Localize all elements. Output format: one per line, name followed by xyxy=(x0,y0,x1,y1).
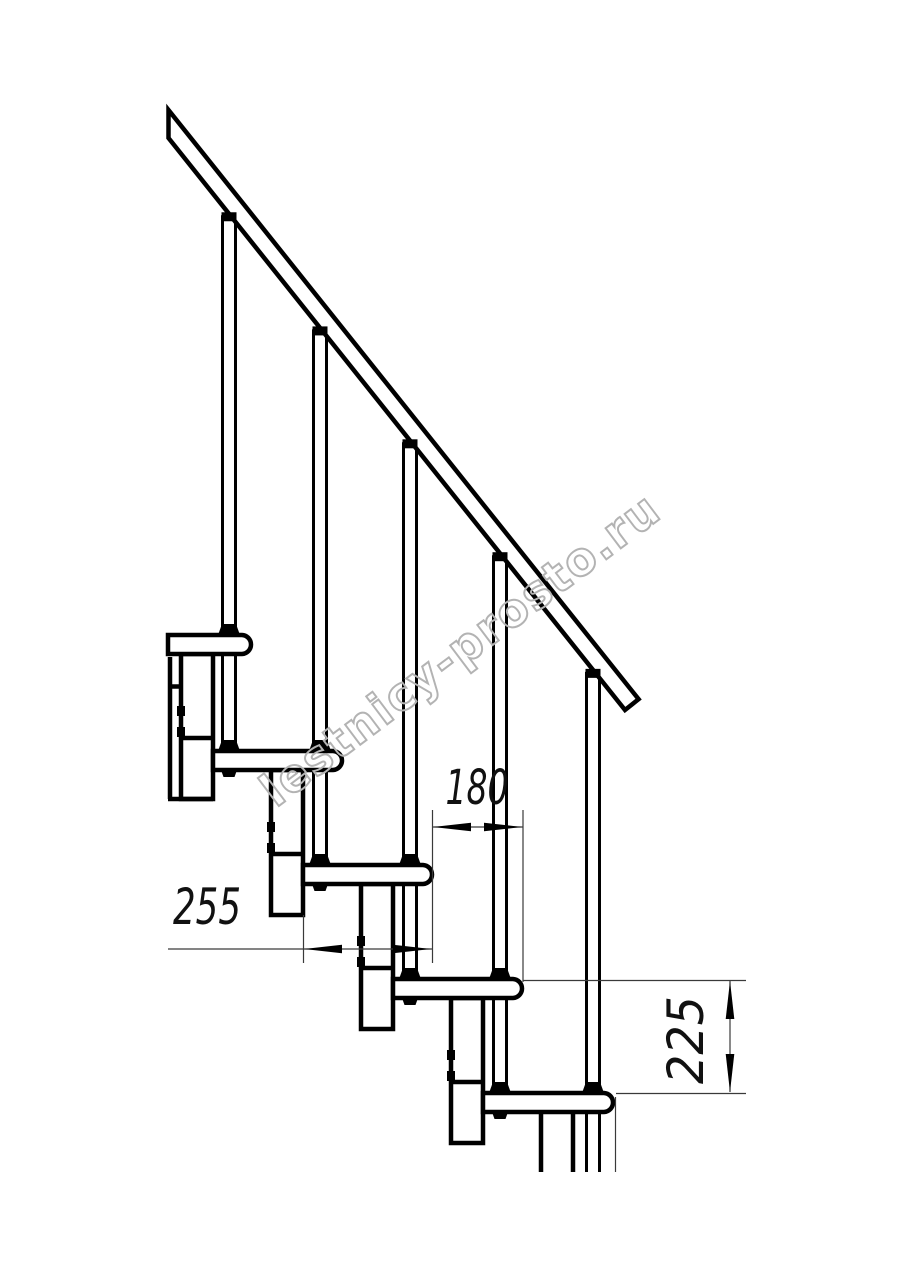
rod-nut xyxy=(492,1112,508,1119)
module-clamp-tab xyxy=(267,843,275,853)
arrowhead-up-icon xyxy=(726,981,735,1019)
tread xyxy=(303,865,432,884)
technical-drawing-staircase: 180 255 225 lestnicy-prosto.ru xyxy=(0,0,914,1280)
dimension-225: 225 xyxy=(523,981,746,1173)
tread-support-module xyxy=(451,998,483,1143)
dimension-180: 180 xyxy=(433,760,524,982)
module-clamp-tab xyxy=(177,706,185,716)
rail-connector-cap xyxy=(313,326,328,335)
rail-connector-cap xyxy=(493,552,508,561)
dimension-label-255: 255 xyxy=(173,878,241,936)
arrowhead-right-icon xyxy=(484,823,522,832)
arrowhead-left-icon xyxy=(304,945,342,954)
module-clamp-tab xyxy=(357,957,365,967)
rod-nut xyxy=(402,998,418,1005)
tread-support-module xyxy=(181,654,213,799)
tread xyxy=(168,635,251,654)
module-clamp-tab xyxy=(447,1050,455,1060)
rod-nut xyxy=(221,770,237,777)
rail-connector-cap xyxy=(586,669,601,678)
tread-support-module xyxy=(361,884,393,1029)
module-clamp-tab xyxy=(177,727,185,737)
arrowhead-left-icon xyxy=(433,823,471,832)
tread xyxy=(393,979,522,998)
module-clamp-tab xyxy=(357,936,365,946)
dimension-label-180: 180 xyxy=(446,760,509,816)
rod-nut xyxy=(312,884,328,891)
rail-connector-cap xyxy=(403,439,418,448)
dimension-label-225: 225 xyxy=(657,996,715,1084)
staircase-side-view-svg: 180 255 225 lestnicy-prosto.ru xyxy=(0,0,914,1280)
module-clamp-tab xyxy=(267,822,275,832)
arrowhead-down-icon xyxy=(726,1054,735,1092)
tread xyxy=(483,1093,613,1112)
rail-connector-cap xyxy=(222,212,237,221)
arrowhead-right-icon xyxy=(393,945,431,954)
module-clamp-tab xyxy=(447,1071,455,1081)
